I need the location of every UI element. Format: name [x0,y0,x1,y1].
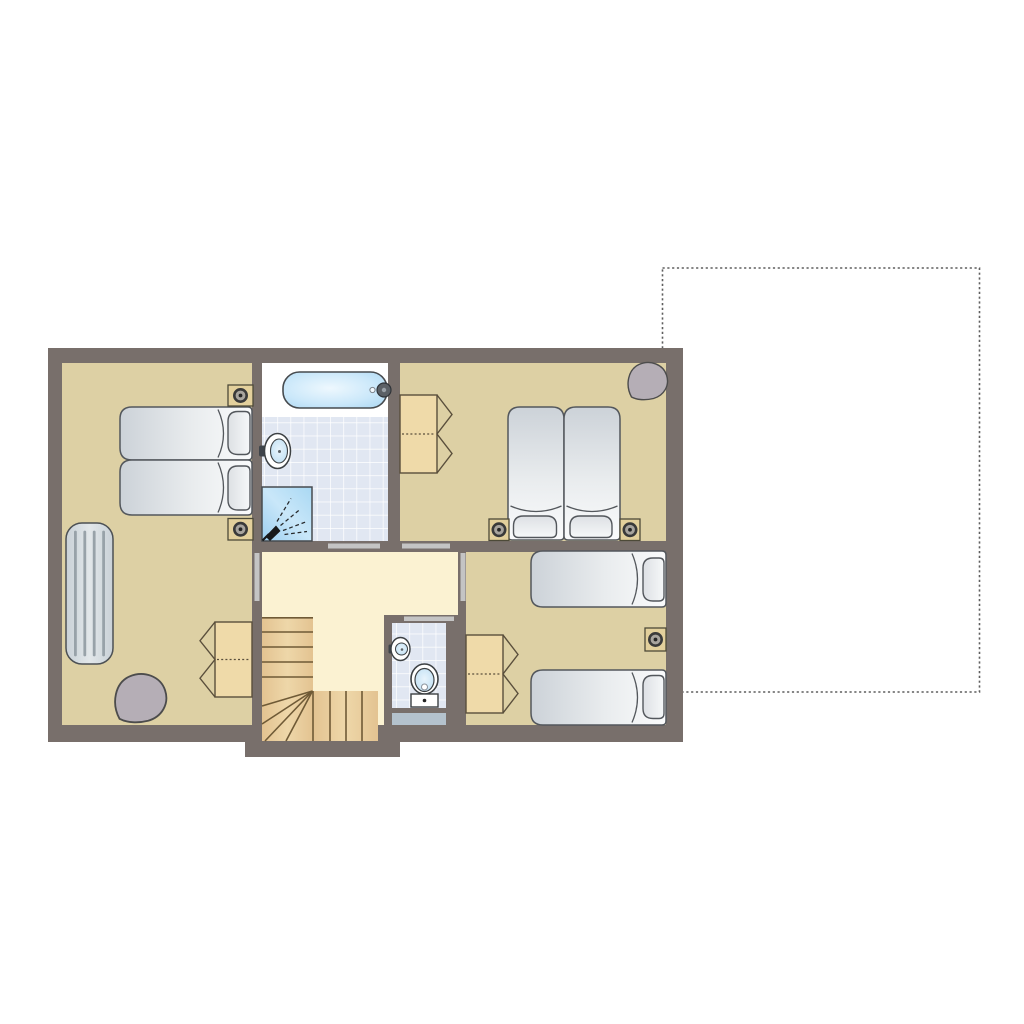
pillow [228,466,250,510]
bedroom-3-nightstand [645,628,666,651]
bedroom-2-single-bed-b [564,407,620,540]
faucet-spout-dot [382,388,386,392]
bedroom-3-door [461,553,466,601]
bedroom-1-beanbag [115,674,166,722]
beanbag-cushion [628,363,667,400]
terrace-outline [663,268,980,692]
bedroom-3-single-bed-b [531,670,666,725]
lamp-dot [497,528,501,532]
wc-mat [392,713,446,725]
bedroom-1-single-bed-a [120,407,252,460]
beanbag-cushion [115,674,166,722]
bedroom-1-nightstand-bottom [228,519,253,541]
bedroom-2-single-bed-a [508,407,564,540]
toilet [411,664,438,707]
pillow [514,516,557,538]
wc-sink-drain [401,648,404,651]
lamp-dot [239,527,243,531]
bedroom-2-nightstand-right [620,519,640,541]
toilet-drain [422,684,428,690]
floor-plan-svg [0,0,1024,1024]
bedroom-1-radiator [66,523,113,664]
bedroom-1-door [255,553,260,601]
radiator-body [66,523,113,664]
bathtub [283,372,391,408]
bedroom-1-single-bed-b [120,460,252,515]
bedroom-2-door [402,544,450,549]
bedroom-2-beanbag [628,363,667,400]
floor-plan-canvas [0,0,1024,1024]
lamp-dot [654,638,658,642]
bathroom-door [328,544,380,549]
bathtub-drain [370,387,375,392]
bedroom-2-nightstand-left [489,519,509,541]
pillow [228,412,250,455]
shower [262,487,312,541]
sink-drain [278,450,281,453]
lamp-dot [239,394,243,398]
lamp-dot [628,528,632,532]
stairs-upper-flight [262,617,313,741]
bedroom-3-single-bed-a [531,551,666,607]
pillow [643,676,664,719]
bedroom-1-nightstand-top [228,385,253,406]
pillow [643,558,664,601]
wc-door [404,617,454,622]
toilet-flush-button [423,699,427,703]
pillow [570,516,612,538]
